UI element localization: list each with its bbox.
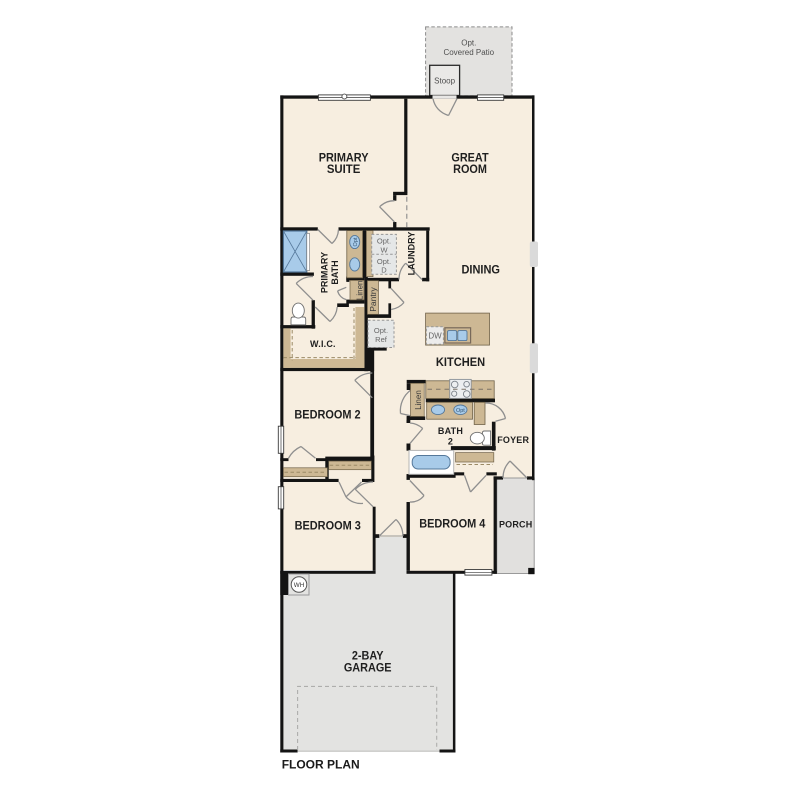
svg-text:Pantry: Pantry <box>368 286 378 311</box>
svg-text:BATH: BATH <box>330 260 340 284</box>
svg-text:KITCHEN: KITCHEN <box>436 355 485 369</box>
svg-text:GARAGE: GARAGE <box>344 661 392 675</box>
svg-text:BEDROOM 4: BEDROOM 4 <box>419 517 485 531</box>
svg-text:BEDROOM 2: BEDROOM 2 <box>294 407 360 421</box>
svg-text:PORCH: PORCH <box>499 520 533 530</box>
svg-text:LAUNDRY: LAUNDRY <box>407 232 417 276</box>
svg-text:DW: DW <box>428 332 442 341</box>
svg-text:BATH: BATH <box>438 426 463 436</box>
svg-text:PRIMARY: PRIMARY <box>320 252 330 293</box>
svg-text:D: D <box>381 266 387 275</box>
svg-text:FLOOR PLAN: FLOOR PLAN <box>282 758 360 772</box>
svg-text:Opt.: Opt. <box>374 326 388 335</box>
svg-text:Linen: Linen <box>356 281 365 301</box>
svg-text:Stoop: Stoop <box>434 77 455 86</box>
svg-text:Covered Patio: Covered Patio <box>443 48 494 57</box>
svg-text:Opt.: Opt. <box>461 39 476 48</box>
svg-text:DINING: DINING <box>461 263 500 277</box>
svg-text:Opt: Opt <box>353 237 359 246</box>
svg-text:Linen: Linen <box>414 390 423 410</box>
svg-text:2: 2 <box>448 436 453 446</box>
svg-text:WH: WH <box>294 582 305 589</box>
svg-text:SUITE: SUITE <box>327 162 361 176</box>
svg-text:BEDROOM 3: BEDROOM 3 <box>295 518 361 532</box>
svg-text:W: W <box>380 245 388 254</box>
svg-text:W.I.C.: W.I.C. <box>310 339 336 349</box>
svg-text:FOYER: FOYER <box>497 435 529 445</box>
svg-text:Ref: Ref <box>375 335 388 344</box>
svg-text:Opt: Opt <box>456 408 465 414</box>
svg-text:ROOM: ROOM <box>453 162 487 176</box>
